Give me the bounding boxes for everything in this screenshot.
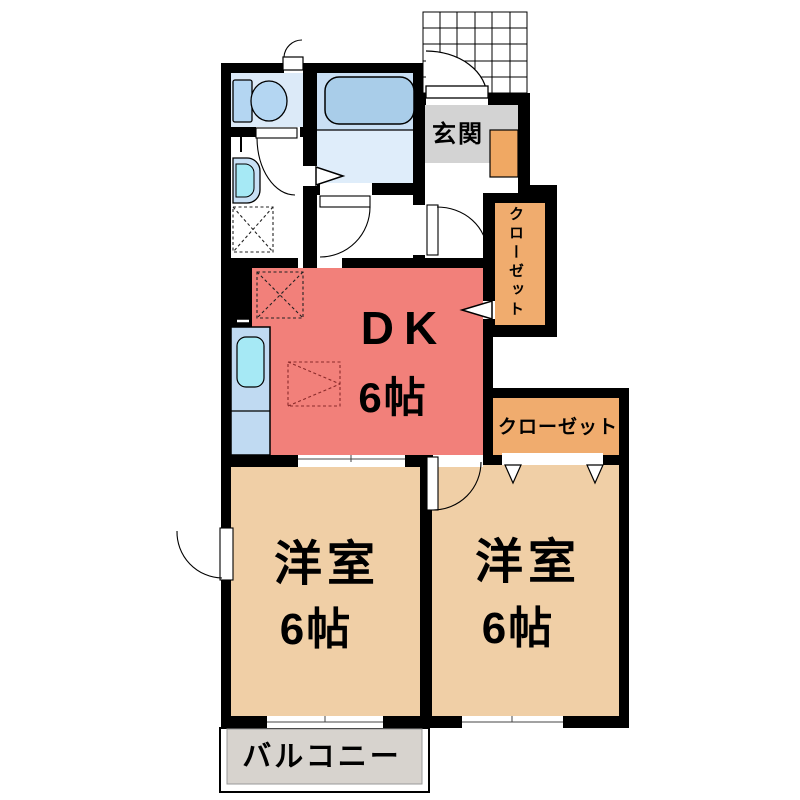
dk-room-area (252, 268, 483, 455)
bedroom-west-size: 6帖 (280, 608, 352, 652)
bedroom-west-window-icon (267, 716, 383, 728)
washbasin-icon (233, 158, 260, 203)
bedroom-east-area (432, 465, 619, 716)
dk-label: DK (361, 305, 447, 351)
bedroom-west-label: 洋室 (274, 541, 380, 589)
balcony-label: バルコニー (242, 743, 401, 772)
bedroom-east-label: 洋室 (475, 539, 581, 587)
kitchen-sink-icon (237, 337, 264, 387)
shoe-cabinet-icon (490, 130, 518, 177)
genkan-hall-door-icon (413, 205, 487, 255)
floor-plan: 玄関 クローゼット DK 6帖 クローゼット 洋室 6帖 洋室 6帖 バルコニー (0, 0, 800, 800)
bedroom-east-window-icon (462, 716, 563, 728)
genkan-label: 玄関 (432, 123, 484, 147)
pipe-shaft-block (221, 258, 252, 330)
dk-bedroom-sliding-door-icon (298, 455, 405, 467)
washing-machine-space-icon (233, 207, 273, 252)
bathtub-icon (325, 77, 414, 124)
closet-north-label: クローゼット (508, 206, 523, 320)
bedroom-west-outside-door-icon (177, 528, 233, 580)
toilet-window-door-icon (283, 40, 303, 73)
toilet-icon (233, 80, 287, 122)
hallway-door-icon (320, 184, 372, 257)
closet-east-label: クローゼット (498, 418, 618, 437)
toilet-door-icon (256, 127, 300, 195)
bedroom-east-size: 6帖 (482, 607, 554, 651)
kitchen-counter-icon (231, 327, 270, 455)
dk-size-label: 6帖 (358, 377, 427, 419)
